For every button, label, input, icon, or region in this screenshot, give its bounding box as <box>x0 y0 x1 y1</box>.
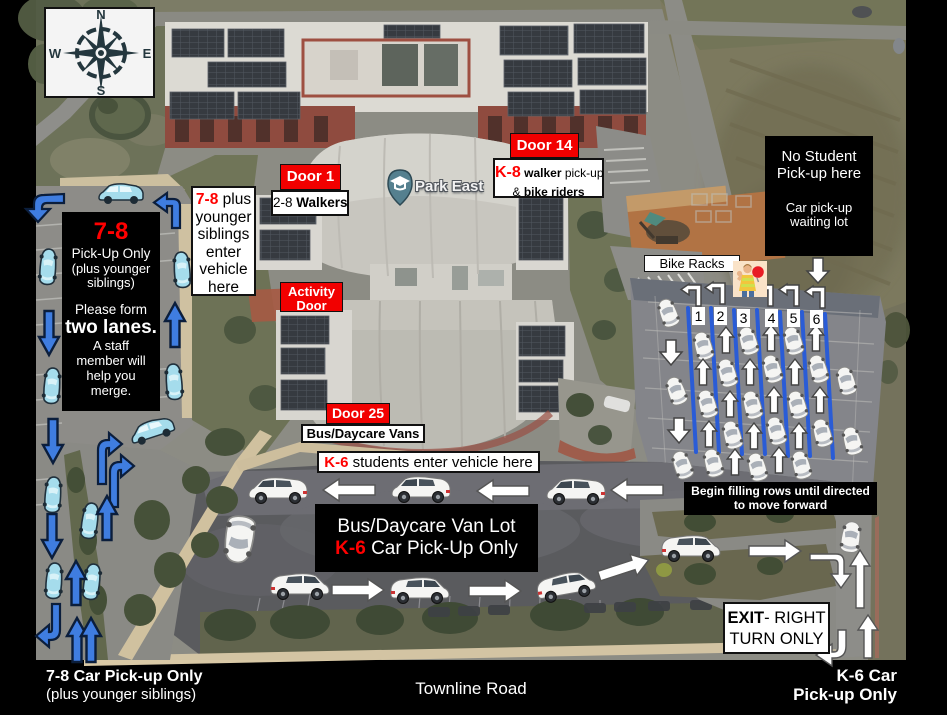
svg-text:N: N <box>96 7 105 22</box>
svg-text:E: E <box>143 46 152 61</box>
svg-text:S: S <box>97 83 106 98</box>
svg-text:W: W <box>49 46 62 61</box>
